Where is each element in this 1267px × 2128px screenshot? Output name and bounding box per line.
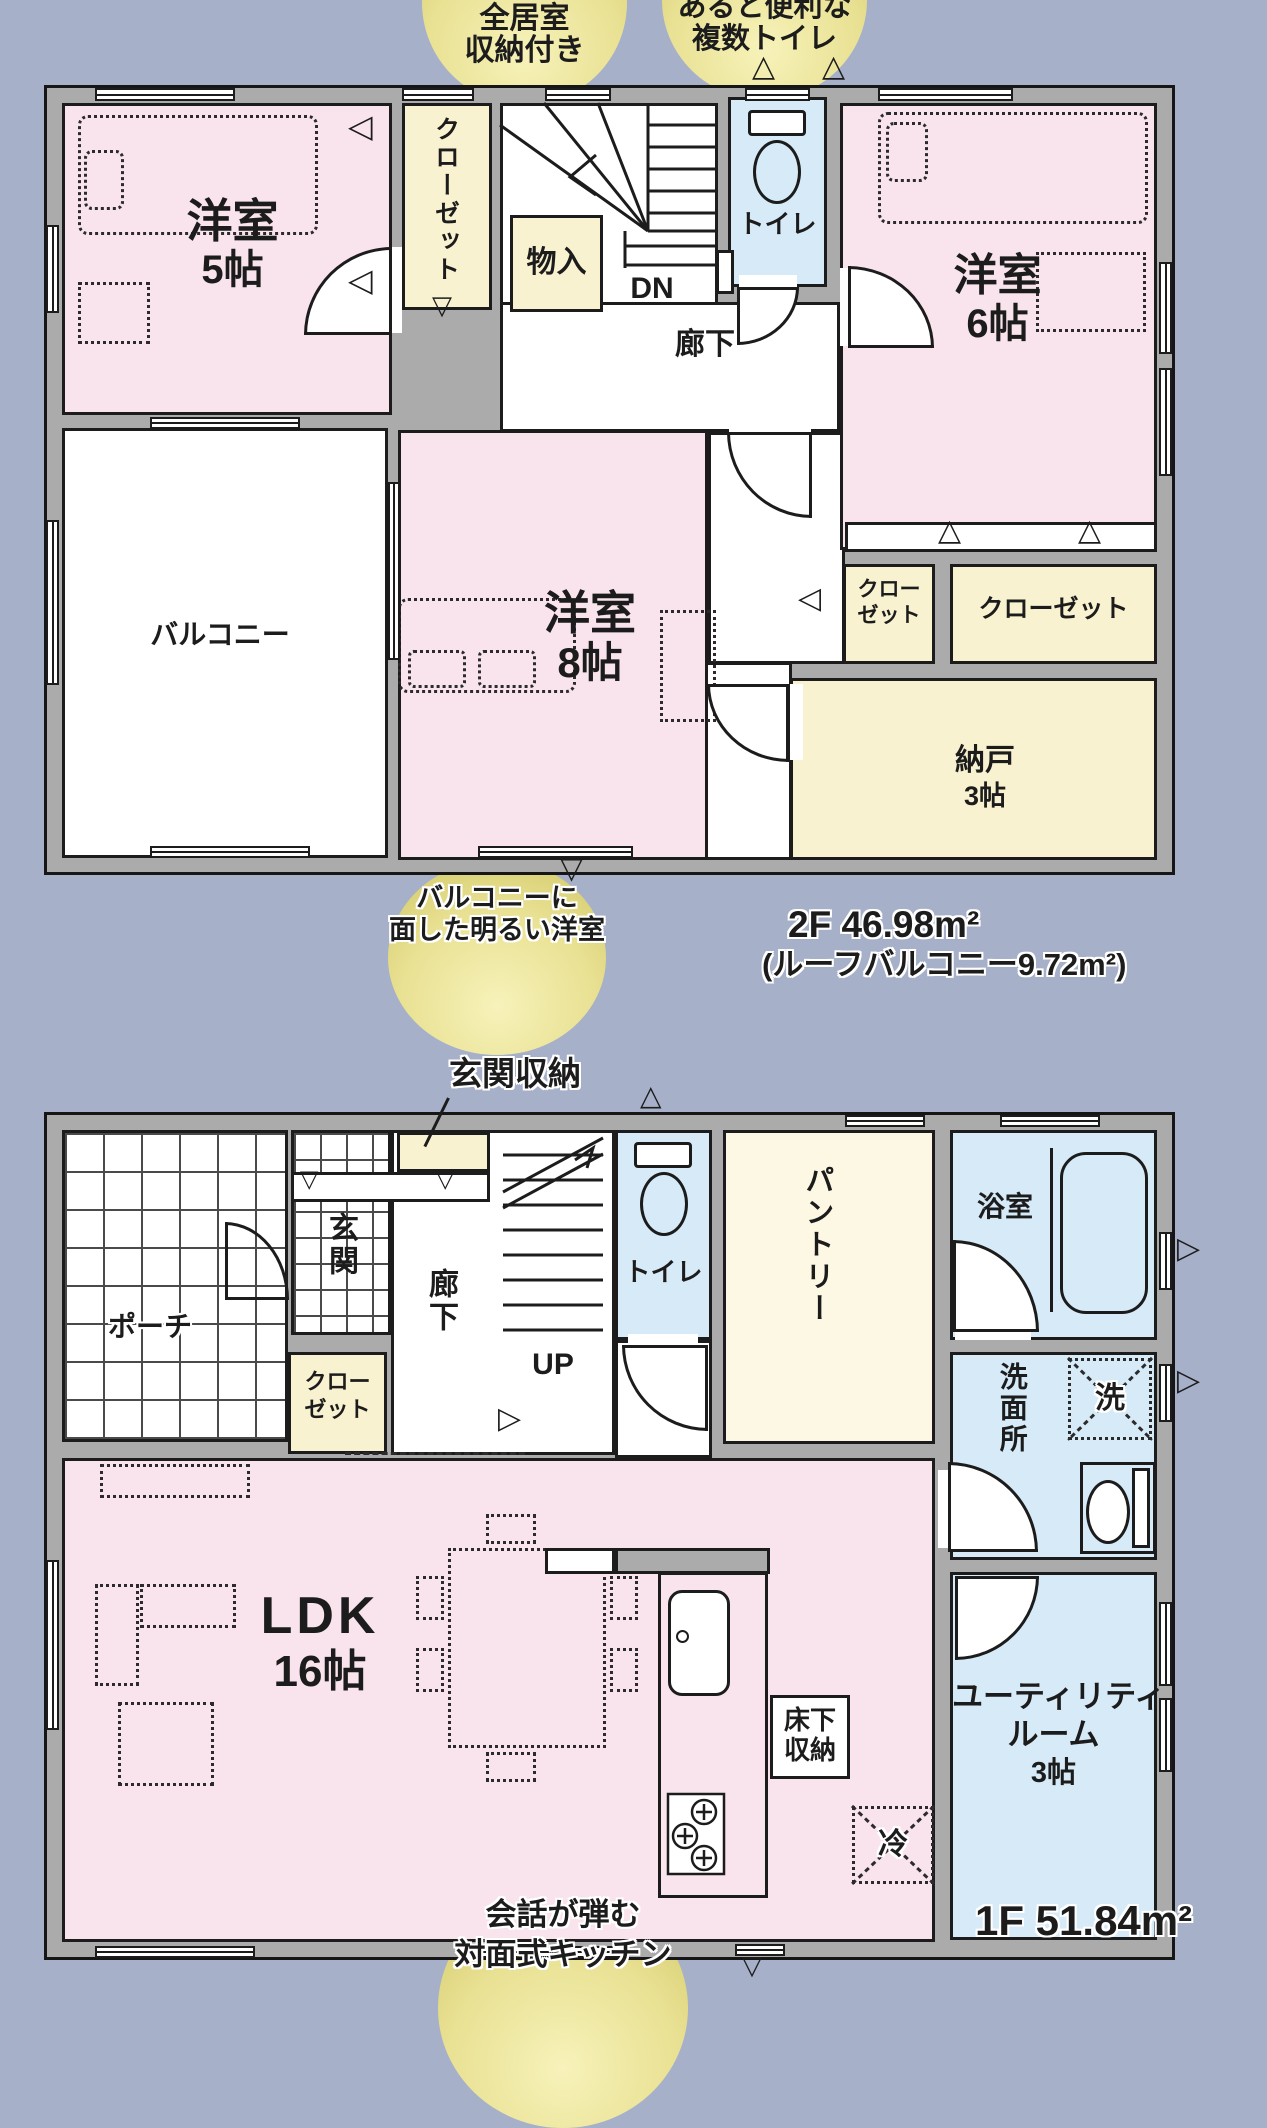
window-2f-top-west6 <box>878 88 1013 101</box>
window-1f-right-wash <box>1159 1364 1172 1422</box>
window-1f-right-bath <box>1159 1232 1172 1290</box>
sliding-door-icon: ▽ <box>436 1168 454 1192</box>
label-western6-title: 洋室 <box>880 252 1115 300</box>
badge-bright-room-line2: 面した明るい洋室 <box>370 916 624 946</box>
hall-ldk-boundary <box>345 1452 525 1455</box>
label-dn: DN <box>612 272 692 305</box>
closet-door-icon: △ <box>938 516 961 546</box>
label-pantry: パントリー <box>800 1165 832 1325</box>
window-west5-balcony <box>150 417 300 429</box>
vent-icon: △ <box>752 52 775 82</box>
closet-door-icon: △ <box>1078 516 1101 546</box>
label-western5-size: 5帖 <box>120 248 345 292</box>
toilet-sink-2f <box>716 250 734 294</box>
label-closet-small-2f-line1: クロー <box>845 578 933 601</box>
window-2f-right-west6-b <box>1159 368 1172 476</box>
label-nando-size: 3帖 <box>865 782 1105 812</box>
label-porch: ポーチ <box>80 1312 220 1343</box>
badge-all-rooms-storage-line1: 全居室 <box>422 2 627 35</box>
stairs-up-1f <box>503 1130 603 1355</box>
window-1f-bottom-ldk-a <box>95 1946 255 1958</box>
window-2f-bottom-balcony <box>150 846 310 858</box>
label-washer: 洗 <box>1068 1382 1152 1415</box>
label-hallway-1f: 廊下 <box>424 1268 457 1334</box>
badge-multiple-toilets-line1: あると便利な <box>662 0 867 24</box>
window-2f-left-west5 <box>46 225 59 313</box>
window-2f-top-closet <box>402 88 474 101</box>
label-toilet-2f: トイレ <box>735 210 820 239</box>
window-2f-top-stairs <box>545 88 611 101</box>
label-closet-small-2f-line2: ゼット <box>845 604 933 627</box>
window-balcony-west8 <box>388 482 400 660</box>
toilet-bowl-1f-icon <box>640 1172 688 1236</box>
label-ldk-title: LDK <box>180 1588 460 1645</box>
window-1f-top-bath <box>1000 1115 1100 1127</box>
kitchen-counter-end <box>545 1548 615 1574</box>
label-bath: 浴室 <box>955 1192 1055 1223</box>
label-floor-storage-line2: 収納 <box>770 1736 850 1765</box>
vent-icon: △ <box>822 52 845 82</box>
label-toilet-1f: トイレ <box>618 1258 709 1287</box>
sliding-door-icon: ▽ <box>300 1168 318 1192</box>
label-storage-monoire: 物入 <box>510 246 603 279</box>
toilet-bowl-2f-icon <box>753 140 801 204</box>
floor2-area-note: (ルーフバルコニー9.72m²) <box>762 948 1182 982</box>
sofa-a <box>95 1584 139 1686</box>
western6-sliding-band <box>845 522 1157 552</box>
label-floor-storage-line1: 床下 <box>770 1706 850 1735</box>
label-closet-west: クローゼット <box>431 116 459 284</box>
kitchen-faucet-icon <box>676 1630 689 1643</box>
label-fridge: 冷 <box>852 1828 934 1861</box>
window-2f-top-west5 <box>95 88 235 101</box>
stove-icon <box>666 1792 726 1876</box>
kitchen-sink-icon <box>668 1590 730 1696</box>
window-2f-bottom-west8 <box>478 846 633 858</box>
tv-board <box>100 1464 250 1498</box>
note-entrance-storage: 玄関収納 <box>400 1056 630 1092</box>
badge-kitchen-talk-line1: 会話が弾む <box>438 1898 688 1932</box>
closet-door-icon: ◁ <box>798 584 821 614</box>
closet-door-icon: ◁ <box>348 110 373 142</box>
window-1f-right-utility-a <box>1159 1602 1172 1686</box>
toilet-tank-1f-icon <box>634 1142 692 1168</box>
badge-kitchen-talk-line2: 対面式キッチン <box>420 1938 706 1972</box>
stairs-down-2f <box>500 103 718 343</box>
washroom-toilet-tank-icon <box>1132 1468 1150 1548</box>
floor2-area: 2F 46.98m² <box>788 905 1088 946</box>
label-utility-line1: ユーティリティ <box>952 1680 1155 1714</box>
window-2f-left-balcony <box>46 520 59 685</box>
badge-multiple-toilets-line2: 複数トイレ <box>662 24 867 56</box>
window-arrow-icon: ▷ <box>1177 1234 1200 1264</box>
genkan-sliding-band <box>291 1172 490 1202</box>
dining-table <box>448 1548 606 1748</box>
label-closet-1f-line1: クロー <box>290 1370 385 1394</box>
pillow-western6 <box>886 122 928 182</box>
label-closet-1f-line2: ゼット <box>290 1398 385 1422</box>
badge-all-rooms-storage-line2: 収納付き <box>422 34 627 67</box>
vent-icon: ▽ <box>560 854 583 884</box>
bath-partition-line <box>1050 1148 1053 1312</box>
washroom-toilet-bowl-icon <box>1086 1480 1130 1544</box>
vent-icon: ▽ <box>742 1952 762 1978</box>
window-2f-top-toilet <box>745 88 810 101</box>
door-gap-nando <box>790 684 803 760</box>
vent-icon: △ <box>640 1082 662 1110</box>
window-arrow-icon: ▷ <box>1177 1366 1200 1396</box>
label-up: UP <box>503 1348 603 1381</box>
label-western5-title: 洋室 <box>120 196 345 247</box>
window-1f-left-ldk <box>46 1560 59 1730</box>
closet-door-icon: ▷ <box>498 1404 521 1434</box>
pillow-western8-a <box>408 650 466 688</box>
label-closet-wide-2f: クローゼット <box>952 596 1155 624</box>
badge-bright-room-line1: バルコニーに <box>388 884 606 914</box>
label-washroom: 洗面所 <box>996 1362 1027 1455</box>
label-balcony: バルコニー <box>140 620 300 651</box>
pillow-western5 <box>84 150 124 210</box>
window-1f-top-pantry <box>845 1115 925 1127</box>
label-nando-title: 納戸 <box>865 744 1105 777</box>
dining-chair <box>610 1576 638 1620</box>
label-western6-size: 6帖 <box>880 302 1115 346</box>
window-2f-right-west6-a <box>1159 262 1172 354</box>
label-hallway-2f: 廊下 <box>655 328 755 361</box>
closet-door-icon: ◁ <box>348 264 373 296</box>
dining-chair <box>486 1514 536 1544</box>
low-table <box>118 1702 214 1786</box>
label-western8-size: 8帖 <box>470 640 710 686</box>
toilet-tank-2f-icon <box>748 110 806 136</box>
floorplan-page: { "icons":{"tri_up":"△","tri_down":"▽","… <box>0 0 1267 2001</box>
dining-chair <box>486 1752 536 1782</box>
bathtub-icon <box>1060 1152 1148 1314</box>
label-utility-line2: ルーム <box>952 1718 1155 1752</box>
label-western8-title: 洋室 <box>470 588 710 639</box>
kitchen-wall-stub <box>615 1548 770 1574</box>
door-gap-western8 <box>729 419 811 432</box>
floor1-area: 1F 51.84m² <box>975 1898 1225 1944</box>
dining-chair <box>610 1648 638 1692</box>
label-genkan: 玄関 <box>324 1212 357 1278</box>
closet-door-icon: ▽ <box>432 292 452 318</box>
label-ldk-size: 16帖 <box>180 1648 460 1696</box>
label-utility-line3: 3帖 <box>952 1758 1155 1790</box>
